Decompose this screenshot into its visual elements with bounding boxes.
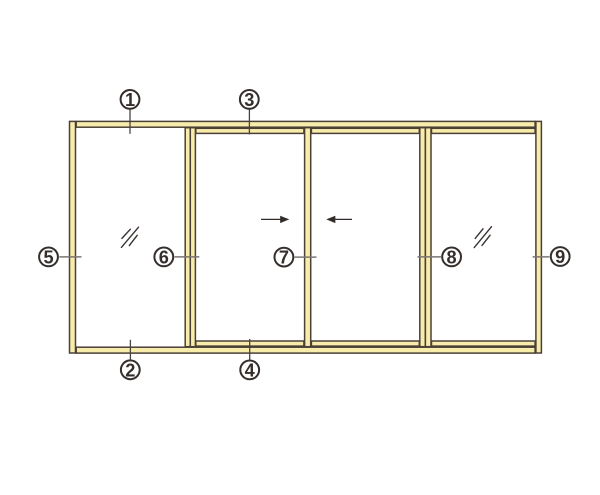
svg-text:1: 1 (125, 90, 135, 110)
svg-text:3: 3 (244, 90, 254, 110)
svg-text:9: 9 (555, 247, 565, 267)
svg-text:7: 7 (279, 248, 289, 268)
svg-text:2: 2 (125, 360, 135, 380)
svg-text:8: 8 (447, 248, 457, 268)
svg-text:4: 4 (245, 361, 256, 381)
svg-text:5: 5 (43, 248, 53, 268)
svg-text:6: 6 (159, 248, 169, 268)
